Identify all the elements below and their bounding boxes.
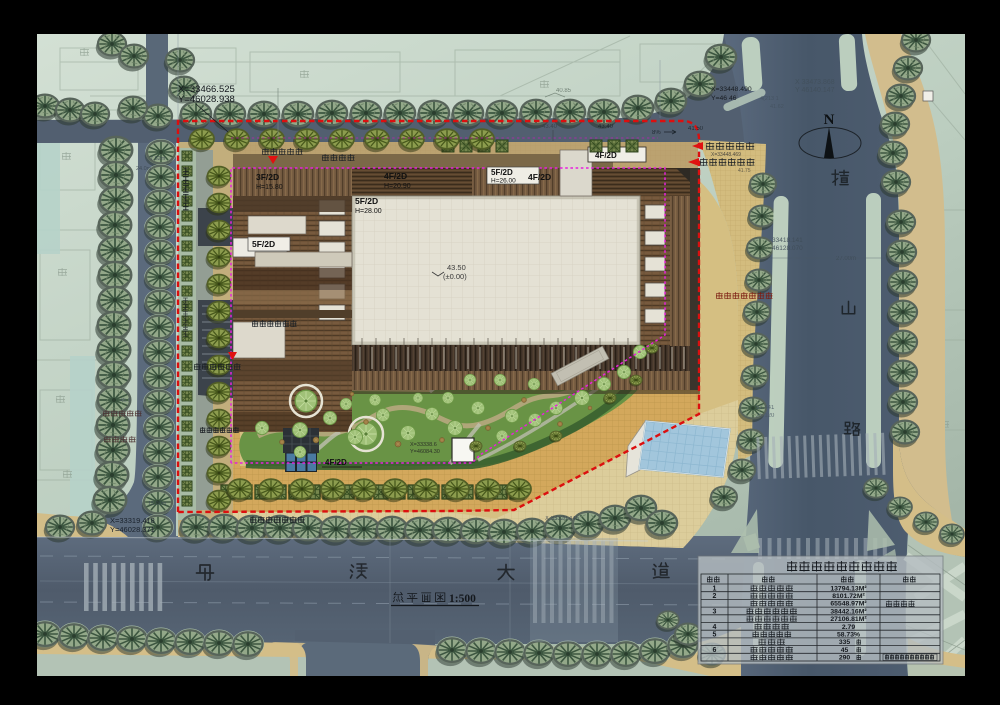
svg-text:Y=46084.30: Y=46084.30: [410, 449, 440, 455]
svg-text:X=33319.418: X=33319.418: [110, 516, 155, 525]
svg-text:41.75: 41.75: [738, 168, 751, 174]
svg-text:Y=46028.938: Y=46028.938: [178, 94, 235, 105]
svg-text:H=28.00: H=28.00: [355, 208, 382, 215]
svg-text:4F/2D: 4F/2D: [528, 172, 551, 182]
svg-text:2: 2: [713, 593, 717, 600]
svg-text:X=33448.490: X=33448.490: [711, 86, 752, 93]
svg-text:27.00m: 27.00m: [836, 256, 856, 262]
svg-text:4F/2D: 4F/2D: [325, 458, 347, 467]
svg-text:5: 5: [713, 631, 717, 638]
svg-text:3F/2D: 3F/2D: [256, 172, 279, 182]
svg-text:45: 45: [841, 647, 849, 654]
svg-text:290: 290: [839, 655, 851, 662]
svg-text:1: 1: [713, 585, 717, 592]
svg-text:H=26.00: H=26.00: [491, 178, 516, 185]
svg-text:X=33338.6: X=33338.6: [410, 442, 437, 448]
svg-text:3: 3: [713, 608, 717, 615]
svg-text:8101.72M²: 8101.72M²: [832, 593, 865, 600]
svg-text:46128.070: 46128.070: [772, 245, 803, 252]
svg-text:15.00m: 15.00m: [148, 501, 167, 507]
svg-text:X=33448.469: X=33448.469: [711, 152, 741, 158]
svg-text:13794.13M²: 13794.13M²: [830, 585, 867, 592]
svg-text:5F/2D: 5F/2D: [252, 239, 275, 249]
svg-text:Y=46028.371: Y=46028.371: [110, 525, 155, 534]
svg-text:43.40: 43.40: [598, 124, 614, 130]
svg-text:43.40: 43.40: [542, 124, 558, 130]
svg-text:Y 46140.147: Y 46140.147: [795, 87, 835, 94]
svg-text:5F/2D: 5F/2D: [355, 196, 378, 206]
svg-text:52.441: 52.441: [756, 405, 775, 411]
svg-text:(±0.00): (±0.00): [443, 272, 467, 281]
svg-text:65548.97M²: 65548.97M²: [830, 601, 867, 608]
svg-text:N: N: [824, 112, 835, 128]
svg-text:4F/2D: 4F/2D: [384, 171, 407, 181]
svg-text:43.50: 43.50: [447, 263, 466, 272]
svg-text:38442.16M²: 38442.16M²: [830, 608, 867, 615]
svg-text:7.62m: 7.62m: [150, 156, 166, 162]
svg-text:45.5: 45.5: [120, 398, 131, 404]
svg-text:40.85: 40.85: [556, 88, 572, 94]
svg-text:2.79: 2.79: [842, 624, 855, 631]
svg-text:1:500: 1:500: [449, 593, 476, 605]
svg-text:Y=46 46: Y=46 46: [711, 95, 737, 102]
svg-text:X 33473.868: X 33473.868: [795, 79, 835, 86]
svg-text:4(213 1: 4(213 1: [760, 96, 779, 102]
svg-text:4: 4: [713, 624, 717, 631]
svg-text:41.62: 41.62: [770, 104, 784, 110]
svg-text:33418.141: 33418.141: [772, 237, 803, 244]
svg-text:8%: 8%: [652, 130, 661, 136]
svg-text:25.120: 25.120: [756, 413, 775, 419]
svg-text:6: 6: [713, 647, 717, 654]
svg-text:H=20.90: H=20.90: [384, 183, 411, 190]
svg-text:41.50: 41.50: [688, 126, 704, 132]
svg-text:24.0m: 24.0m: [136, 166, 152, 172]
svg-text:5F/2D: 5F/2D: [491, 168, 513, 177]
svg-text:X 33320.445: X 33320.445: [545, 516, 580, 522]
svg-text:27106.81M²: 27106.81M²: [830, 616, 867, 623]
svg-text:H=15.80: H=15.80: [256, 184, 283, 191]
svg-text:335: 335: [839, 639, 851, 646]
svg-text:58.73%: 58.73%: [837, 631, 860, 638]
svg-text:4F/2D: 4F/2D: [595, 151, 617, 160]
